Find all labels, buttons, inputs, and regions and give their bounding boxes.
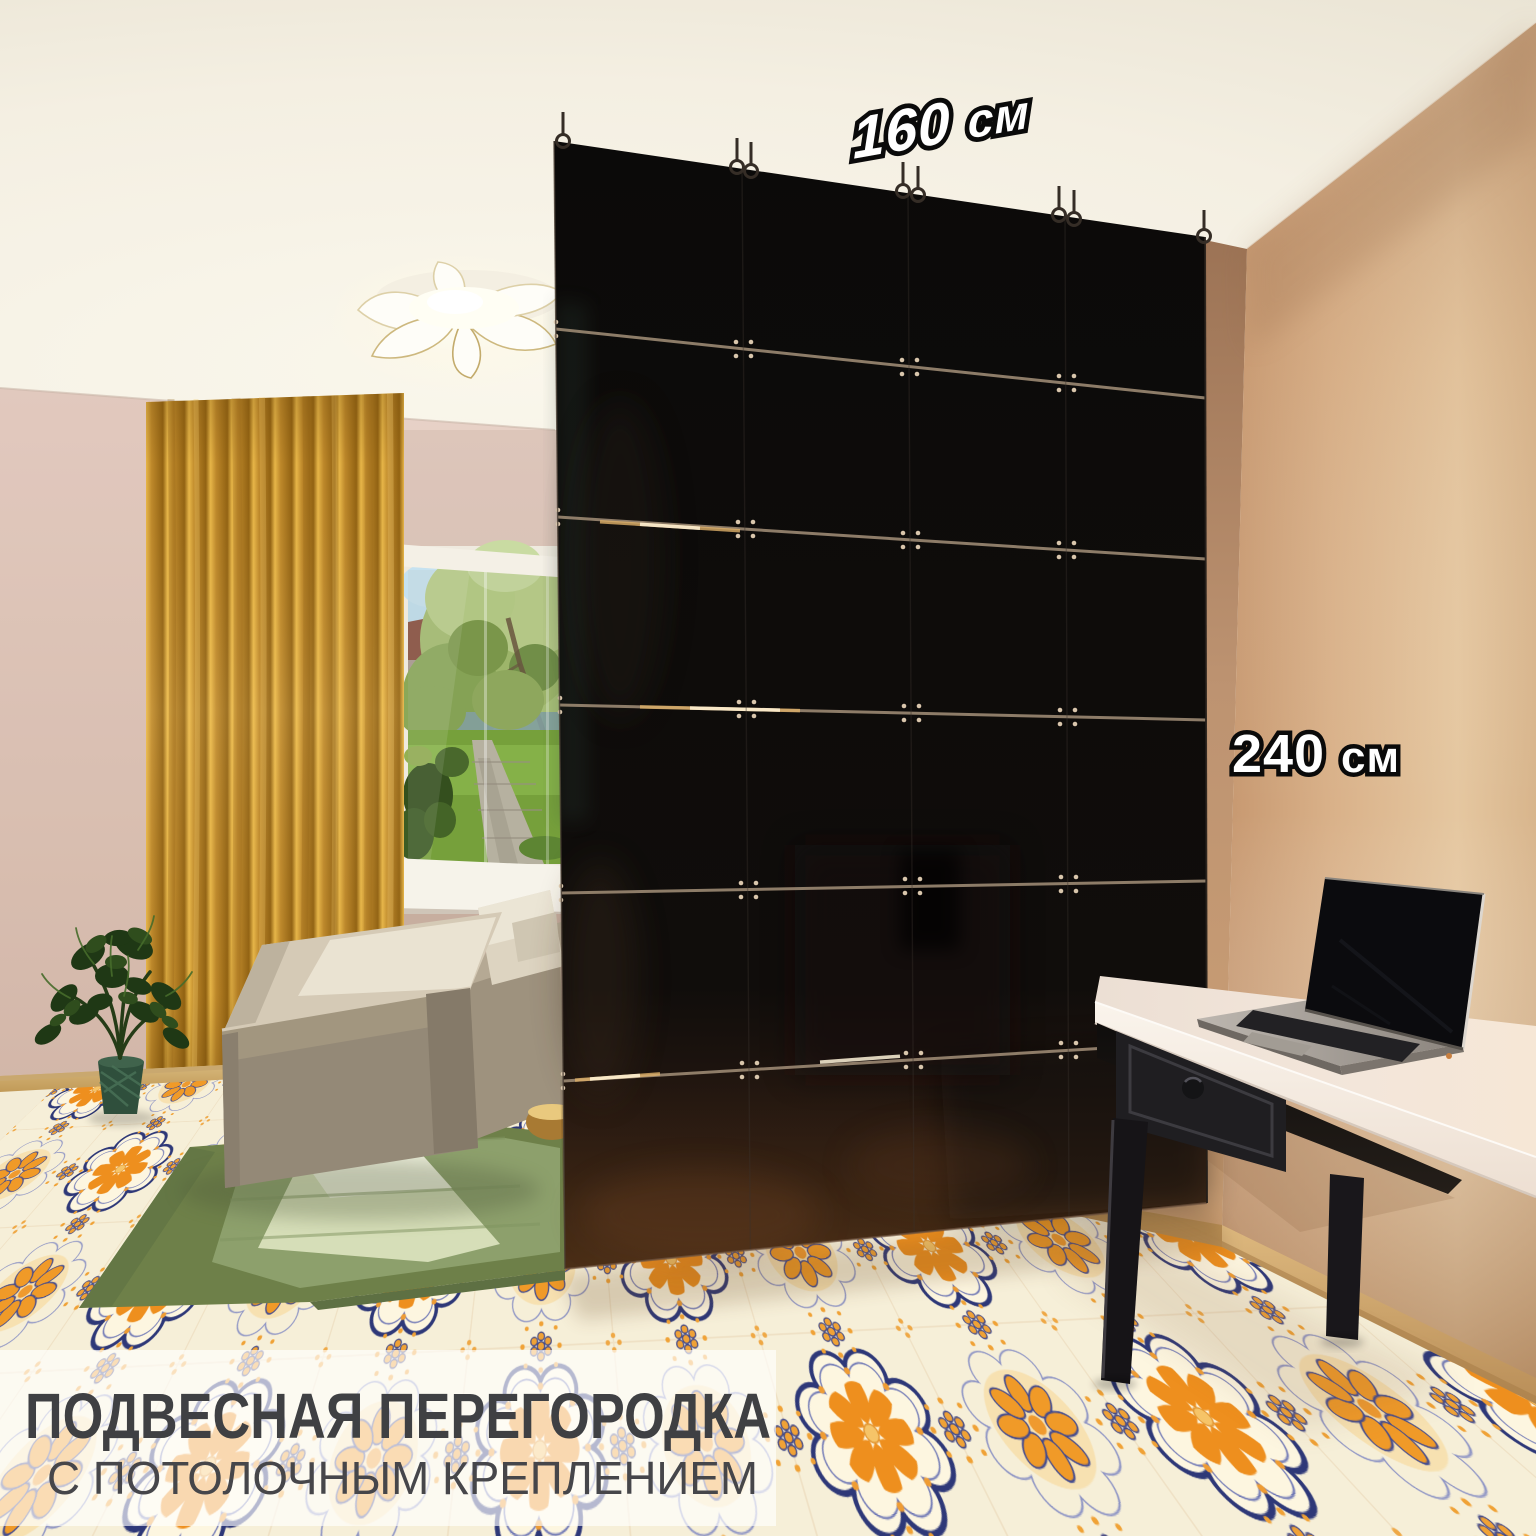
svg-text:ПОДВЕСНАЯ ПЕРЕГОРОДКА: ПОДВЕСНАЯ ПЕРЕГОРОДКА [25,1380,771,1452]
svg-text:С ПОТОЛОЧНЫМ КРЕПЛЕНИЕМ: С ПОТОЛОЧНЫМ КРЕПЛЕНИЕМ [47,1452,758,1504]
svg-text:160 см: 160 см [851,75,1030,171]
svg-text:240 см: 240 см [1232,724,1400,784]
